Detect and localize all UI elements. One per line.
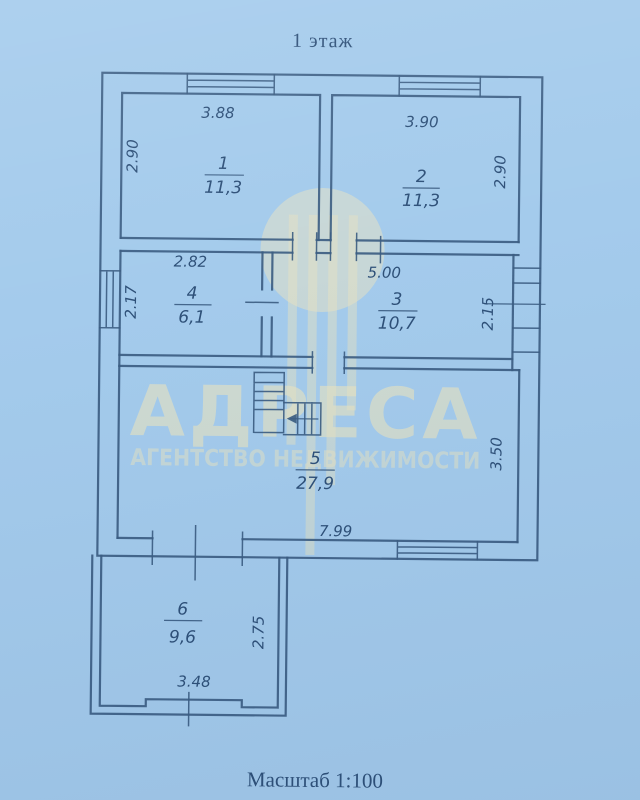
window-room1-icon: [187, 74, 274, 95]
room-3-number: 3: [391, 290, 402, 310]
room-2-number: 2: [416, 167, 427, 187]
wall-band-lower: [119, 355, 519, 370]
scan-content: 1 этаж АДРЕСА АГЕНТСТВО НЕДВИЖИМОСТИ: [0, 0, 640, 800]
room-5-right-wall: [517, 370, 519, 542]
floor-plan-drawing: АДРЕСА АГЕНТСТВО НЕДВИЖИМОСТИ: [0, 0, 640, 800]
dim-room4-top: 2.82: [174, 252, 208, 270]
dim-room5-right: 3.50: [487, 437, 505, 471]
room-2-area: 11,3: [402, 191, 440, 211]
room-5-bottom-wall: [117, 538, 517, 542]
watermark-logo-circle: [260, 187, 385, 312]
window-room3-icon: [512, 268, 540, 352]
room-4-number: 4: [187, 284, 198, 304]
watermark-brand: АДРЕСА: [129, 370, 482, 456]
dim-room5-bottom: 7.99: [319, 522, 353, 540]
dim-room4-left: 2.17: [122, 285, 140, 319]
bottom-wall-ticks: [152, 525, 243, 580]
room-1-number: 1: [218, 154, 229, 174]
scanned-floor-plan-page: 1 этаж АДРЕСА АГЕНТСТВО НЕДВИЖИМОСТИ: [0, 0, 640, 800]
room-5-area: 27,9: [296, 474, 334, 494]
dim-room3-right: 2.15: [479, 297, 497, 331]
window-room5-icon: [397, 541, 477, 560]
room-4-area: 6,1: [178, 308, 205, 328]
room-1-area: 11,3: [204, 178, 242, 198]
room-3-area: 10,7: [378, 314, 416, 334]
room-5-number: 5: [310, 449, 321, 469]
dim-room3-top: 5.00: [367, 263, 401, 281]
room-6-area: 9,6: [169, 627, 196, 647]
dim-room6-bottom: 3.48: [177, 673, 211, 691]
window-room2-icon: [399, 76, 480, 97]
window-room4-icon: [100, 271, 121, 328]
dim-room1-top: 3.88: [201, 104, 235, 122]
room-6-number: 6: [177, 600, 188, 620]
left-inner-wall: [117, 251, 120, 538]
dim-room1-left: 2.90: [123, 139, 141, 173]
dim-room6-right: 2.75: [249, 616, 267, 650]
dim-room2-right: 2.90: [491, 155, 509, 189]
dim-room2-top: 3.90: [405, 113, 439, 131]
